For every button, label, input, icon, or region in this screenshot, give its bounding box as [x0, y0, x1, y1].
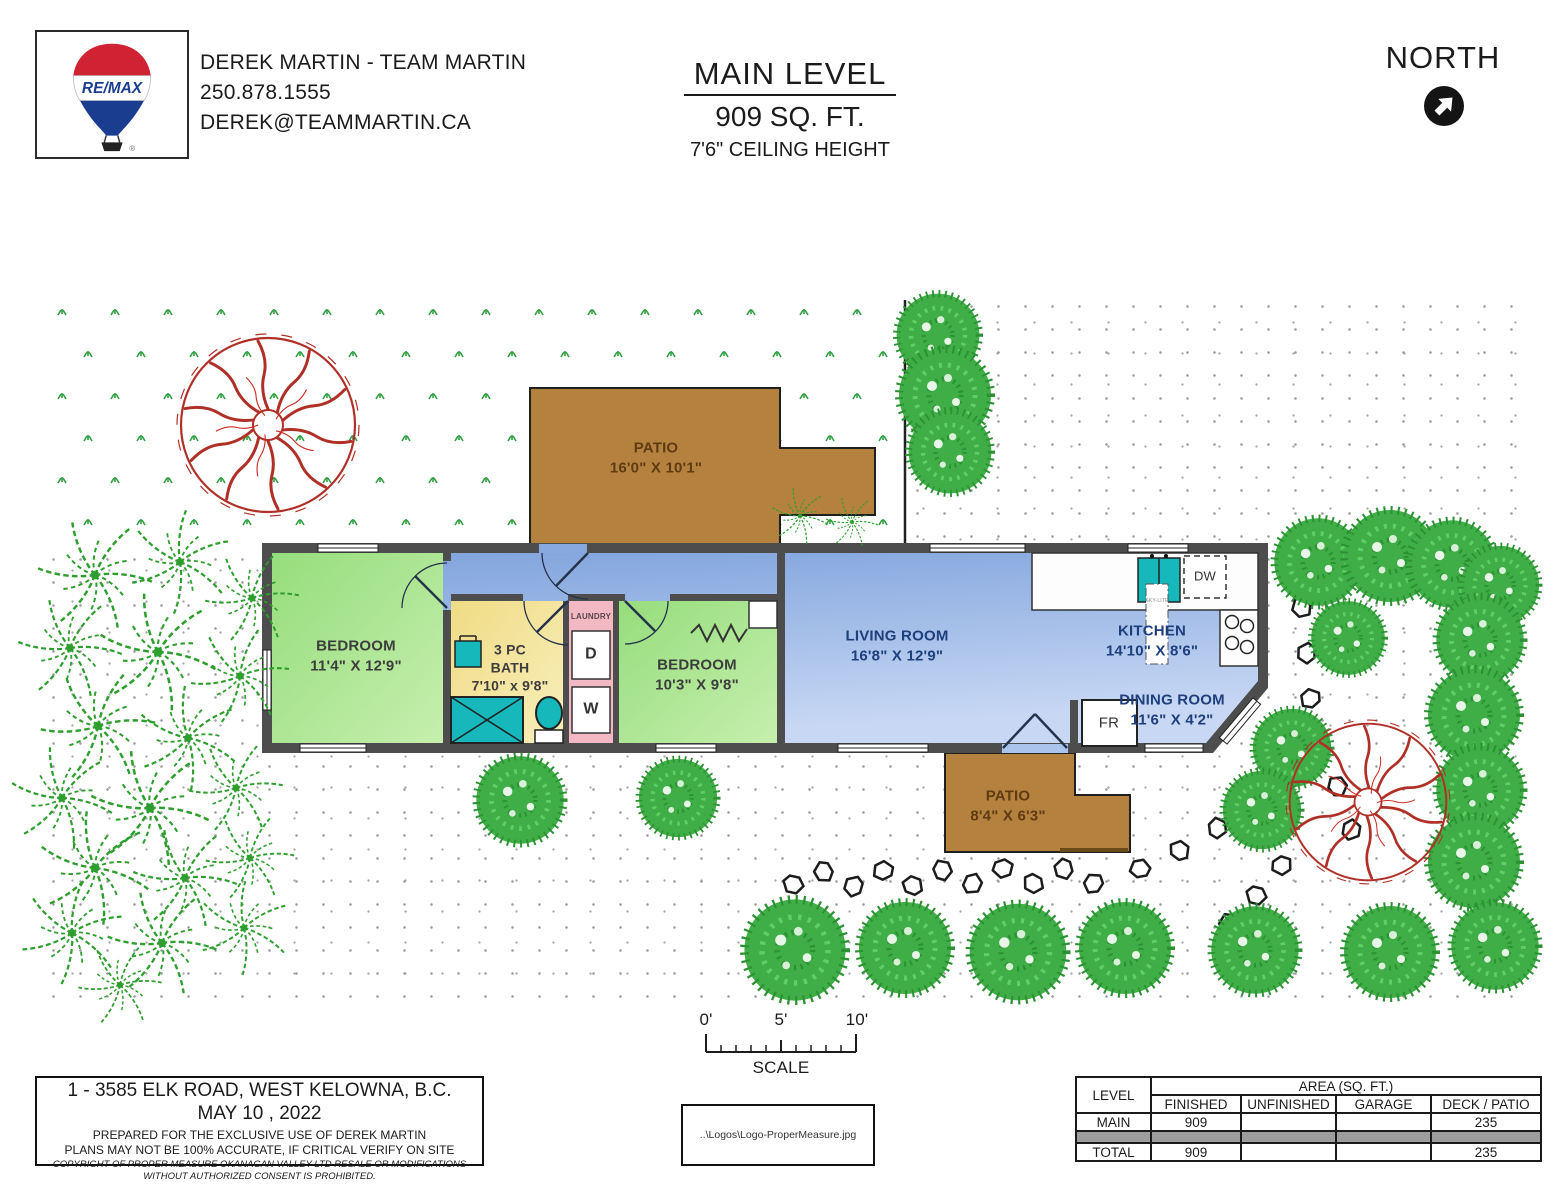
- agent-phone: 250.878.1555: [200, 78, 526, 108]
- floor-plan-page: RE/MAX ® DEREK MARTIN - TEAM MARTIN 250.…: [0, 0, 1553, 1200]
- main-deck-patio: 235: [1431, 1113, 1541, 1131]
- scale-tick-5: 5': [774, 1009, 787, 1031]
- total-unfinished: [1241, 1143, 1336, 1161]
- level-title: MAIN LEVEL: [684, 56, 897, 96]
- total-finished: 909: [1151, 1143, 1241, 1161]
- table-row-total: TOTAL 909 235: [1076, 1143, 1541, 1161]
- main-finished: 909: [1151, 1113, 1241, 1131]
- prepared-for: PREPARED FOR THE EXCLUSIVE USE OF DEREK …: [37, 1128, 482, 1142]
- registered-mark: ®: [129, 144, 135, 153]
- remax-logo: RE/MAX ®: [35, 30, 189, 159]
- main-unfinished: [1241, 1113, 1336, 1131]
- ceiling-height: 7'6" CEILING HEIGHT: [590, 139, 990, 162]
- table-header-level: LEVEL: [1076, 1077, 1151, 1113]
- agent-name: DEREK MARTIN - TEAM MARTIN: [200, 48, 526, 78]
- agent-info: DEREK MARTIN - TEAM MARTIN 250.878.1555 …: [200, 48, 526, 137]
- col-finished: FINISHED: [1151, 1095, 1241, 1113]
- total-label: TOTAL: [1076, 1143, 1151, 1161]
- grass-area: [45, 300, 905, 545]
- agent-email: DEREK@TEAMMARTIN.CA: [200, 108, 526, 138]
- scale-ruler: [706, 1034, 856, 1052]
- table-row-main: MAIN 909 235: [1076, 1113, 1541, 1131]
- logo-path-text: ..\Logos\Logo-ProperMeasure.jpg: [700, 1129, 856, 1141]
- scale-label: SCALE: [753, 1057, 810, 1079]
- plan-date: MAY 10 , 2022: [37, 1103, 482, 1125]
- copyright-note: COPYRIGHT OF PROPER MEASURE OKANAGAN VAL…: [37, 1159, 482, 1184]
- col-deck-patio: DECK / PATIO: [1431, 1095, 1541, 1113]
- remax-wordmark: RE/MAX: [82, 80, 144, 97]
- property-address: 1 - 3585 ELK ROAD, WEST KELOWNA, B.C.: [37, 1080, 482, 1102]
- scale-tick-0: 0': [699, 1009, 712, 1031]
- area-subtitle: 909 SQ. FT.: [590, 101, 990, 133]
- north-arrow-icon: [1422, 84, 1466, 128]
- table-row-spacer: [1076, 1131, 1541, 1143]
- plan-title: MAIN LEVEL 909 SQ. FT. 7'6" CEILING HEIG…: [590, 56, 990, 162]
- table-header-area: AREA (SQ. FT.): [1151, 1077, 1541, 1095]
- col-unfinished: UNFINISHED: [1241, 1095, 1336, 1113]
- area-summary-table: LEVEL AREA (SQ. FT.) FINISHED UNFINISHED…: [1075, 1076, 1542, 1162]
- remax-balloon-icon: RE/MAX ®: [53, 36, 171, 154]
- accuracy-note: PLANS MAY NOT BE 100% ACCURATE, IF CRITI…: [37, 1143, 482, 1157]
- proper-measure-logo-placeholder: ..\Logos\Logo-ProperMeasure.jpg: [681, 1104, 875, 1166]
- main-garage: [1336, 1113, 1431, 1131]
- total-garage: [1336, 1143, 1431, 1161]
- main-level-label: MAIN: [1076, 1113, 1151, 1131]
- col-garage: GARAGE: [1336, 1095, 1431, 1113]
- total-deck-patio: 235: [1431, 1143, 1541, 1161]
- scale-tick-10: 10': [846, 1009, 869, 1031]
- north-label: NORTH: [1378, 40, 1508, 76]
- info-box: 1 - 3585 ELK ROAD, WEST KELOWNA, B.C. MA…: [35, 1076, 484, 1166]
